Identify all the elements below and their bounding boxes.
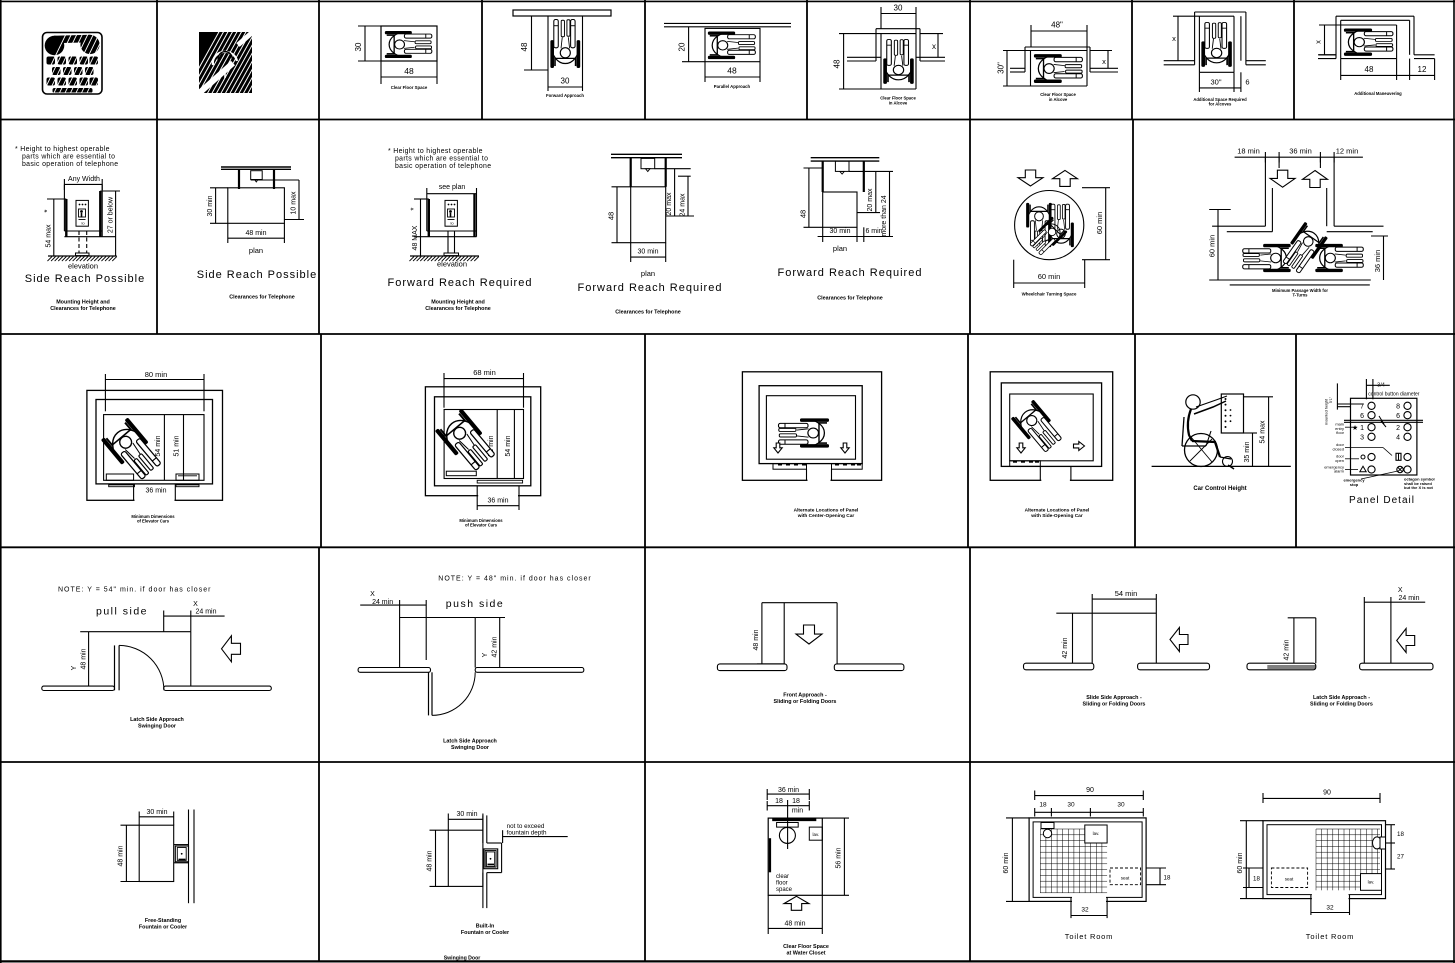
svg-text:in Alcove: in Alcove [1049, 97, 1068, 102]
svg-text:pull side: pull side [96, 606, 148, 618]
svg-text:push side: push side [446, 598, 504, 610]
svg-text:54 min: 54 min [1115, 589, 1138, 598]
svg-text:floor: floor [1336, 430, 1344, 435]
svg-text:T-Turns: T-Turns [1292, 293, 1308, 298]
svg-text:18: 18 [775, 798, 783, 805]
svg-text:X: X [193, 601, 198, 608]
svg-text:Alternate Locations of Panel: Alternate Locations of Panel [794, 508, 859, 514]
svg-text:space: space [776, 887, 793, 893]
svg-text:30: 30 [894, 4, 903, 13]
svg-text:30: 30 [561, 77, 570, 86]
svg-text:Sliding or Folding Doors: Sliding or Folding Doors [774, 699, 837, 705]
svg-text:36 min: 36 min [145, 488, 166, 495]
svg-text:Clear Floor Space: Clear Floor Space [391, 85, 428, 90]
svg-text:control button diameter: control button diameter [1368, 392, 1419, 398]
svg-text:Swinging Door: Swinging Door [451, 745, 490, 751]
svg-text:Sliding or Folding Doors: Sliding or Folding Doors [1083, 702, 1146, 708]
svg-text:plan: plan [833, 244, 847, 253]
svg-text:Parallel Approach: Parallel Approach [714, 84, 751, 89]
svg-text:Forward Reach Required: Forward Reach Required [578, 282, 723, 294]
svg-text:54 min: 54 min [505, 435, 512, 456]
svg-text:27 or below: 27 or below [108, 196, 115, 233]
svg-text:80 min: 80 min [145, 370, 168, 379]
svg-text:24 min: 24 min [1398, 595, 1419, 602]
svg-text:Y: Y [71, 665, 78, 670]
svg-text:32: 32 [1081, 907, 1089, 914]
svg-text:Fountain or Cooler: Fountain or Cooler [139, 925, 188, 931]
svg-text:basic operation of telephone: basic operation of telephone [22, 161, 118, 168]
svg-text:48 min: 48 min [427, 850, 434, 871]
svg-text:Clearances for Telephone: Clearances for Telephone [817, 296, 883, 302]
svg-text:68 min: 68 min [473, 368, 496, 377]
svg-text:6: 6 [1396, 413, 1400, 420]
svg-text:lav.: lav. [812, 832, 819, 837]
svg-text:Clearances for Telephone: Clearances for Telephone [229, 295, 295, 301]
svg-text:of Elevator Cars: of Elevator Cars [137, 519, 170, 524]
svg-text:60 min: 60 min [1237, 852, 1244, 873]
svg-text:7: 7 [1360, 403, 1364, 410]
svg-text:36 min: 36 min [1373, 250, 1382, 273]
svg-text:30 min: 30 min [456, 811, 477, 818]
svg-text:56 min: 56 min [836, 847, 843, 868]
svg-text:Additional Maneuvering: Additional Maneuvering [1354, 91, 1402, 96]
svg-text:min: min [792, 808, 803, 815]
svg-text:48: 48 [727, 66, 737, 76]
svg-text:5'1": 5'1" [1329, 396, 1333, 403]
svg-text:seat: seat [1285, 877, 1294, 882]
svg-text:basic operation of telephone: basic operation of telephone [395, 163, 491, 170]
svg-text:4: 4 [1396, 434, 1400, 441]
svg-text:open: open [1335, 458, 1344, 463]
svg-text:but the X is not: but the X is not [1404, 485, 1434, 490]
svg-text:Toilet Room: Toilet Room [1306, 932, 1354, 941]
svg-text:Y: Y [482, 652, 489, 657]
svg-text:30 min: 30 min [637, 249, 658, 256]
svg-text:8: 8 [1396, 403, 1400, 410]
svg-text:Alternate Locations of Panel: Alternate Locations of Panel [1025, 508, 1090, 514]
svg-text:48 min: 48 min [118, 845, 125, 866]
svg-text:90: 90 [1323, 790, 1331, 797]
svg-text:48 MAX: 48 MAX [412, 225, 419, 250]
svg-text:Latch Side Approach: Latch Side Approach [130, 717, 184, 723]
svg-text:48: 48 [520, 42, 529, 51]
svg-text:48 min: 48 min [245, 230, 266, 237]
svg-text:48: 48 [833, 59, 842, 68]
svg-text:with Center-Opening Car: with Center-Opening Car [797, 513, 855, 519]
svg-text:48: 48 [1365, 65, 1374, 74]
svg-text:3: 3 [1360, 434, 1364, 441]
svg-text:Mounting Height and: Mounting Height and [431, 300, 485, 306]
svg-text:Built-In: Built-In [476, 924, 495, 930]
svg-text:Wheelchair Turning Space: Wheelchair Turning Space [1022, 292, 1077, 297]
svg-text:51 min: 51 min [174, 435, 181, 456]
svg-text:60 min: 60 min [1208, 235, 1217, 258]
svg-text:★ 1: ★ 1 [1352, 424, 1364, 432]
svg-text:in Alcove: in Alcove [889, 101, 908, 106]
svg-text:36 min: 36 min [487, 498, 508, 505]
svg-text:6: 6 [1245, 78, 1249, 87]
svg-text:closed: closed [1332, 446, 1344, 451]
svg-text:18: 18 [792, 798, 800, 805]
svg-text:10 max: 10 max [291, 191, 298, 214]
svg-text:54 max: 54 max [46, 224, 53, 247]
svg-text:NOTE: Y = 54" min. if door has: NOTE: Y = 54" min. if door has closer [58, 587, 211, 594]
svg-text:Latch Side Approach -: Latch Side Approach - [1313, 695, 1370, 701]
svg-text:Forward Reach Required: Forward Reach Required [778, 267, 923, 279]
svg-text:Side Reach Possible: Side Reach Possible [25, 273, 146, 285]
svg-text:18 min: 18 min [1237, 147, 1260, 156]
svg-text:Swinging Door: Swinging Door [444, 956, 481, 962]
svg-text:*: * [410, 207, 419, 210]
svg-text:Car Control Height: Car Control Height [1193, 486, 1246, 492]
svg-text:6: 6 [1360, 413, 1364, 420]
svg-text:Toilet Room: Toilet Room [1065, 932, 1113, 941]
svg-text:mounted height: mounted height [1325, 398, 1329, 425]
svg-text:54 max: 54 max [1260, 420, 1267, 443]
svg-text:18: 18 [1164, 875, 1171, 882]
svg-text:48 min: 48 min [81, 648, 88, 669]
svg-text:30 min: 30 min [829, 228, 850, 235]
svg-text:x: x [1102, 57, 1106, 66]
svg-text:fountain depth: fountain depth [507, 830, 547, 837]
svg-text:18: 18 [1039, 802, 1047, 809]
svg-text:Any Width: Any Width [68, 176, 100, 183]
svg-text:Clearances for Telephone: Clearances for Telephone [50, 306, 116, 312]
svg-text:* Height to highest operable: * Height to highest operable [15, 146, 110, 153]
svg-text:48 min: 48 min [784, 921, 805, 928]
svg-text:plan: plan [641, 269, 655, 278]
svg-text:30: 30 [354, 42, 363, 51]
svg-text:stop: stop [1350, 482, 1359, 487]
svg-text:Free-Standing: Free-Standing [145, 918, 181, 924]
svg-text:18: 18 [1397, 831, 1404, 838]
svg-text:36 min: 36 min [1289, 147, 1312, 156]
svg-text:60 min: 60 min [1095, 212, 1104, 235]
svg-text:90: 90 [1086, 787, 1094, 794]
svg-text:Clear Floor Space: Clear Floor Space [783, 944, 829, 950]
svg-text:30: 30 [1117, 802, 1125, 809]
svg-text:42 min: 42 min [492, 636, 499, 657]
svg-text:30": 30" [1210, 78, 1221, 87]
svg-text:2: 2 [1396, 425, 1400, 432]
svg-text:30 min: 30 min [207, 195, 214, 216]
svg-text:48 min: 48 min [753, 629, 760, 650]
svg-text:parts which are essential to: parts which are essential to [22, 154, 115, 161]
svg-text:18: 18 [1253, 876, 1260, 883]
svg-text:24 max: 24 max [680, 193, 687, 216]
svg-text:30": 30" [997, 62, 1006, 74]
svg-text:x: x [1172, 34, 1176, 43]
svg-text:*: * [43, 209, 52, 212]
svg-text:60 min: 60 min [1003, 852, 1010, 873]
svg-text:clear: clear [776, 874, 789, 880]
svg-text:30 min: 30 min [146, 809, 167, 816]
svg-text:42 min: 42 min [1284, 639, 1291, 660]
svg-text:seat: seat [1121, 876, 1130, 881]
svg-text:20: 20 [678, 42, 687, 51]
svg-text:Sliding or Folding Doors: Sliding or Folding Doors [1310, 702, 1373, 708]
svg-text:at Water Closet: at Water Closet [786, 951, 825, 957]
svg-text:Panel Detail: Panel Detail [1349, 495, 1415, 506]
svg-text:NOTE: Y = 48" min. if door has: NOTE: Y = 48" min. if door has closer [438, 576, 591, 583]
svg-text:48: 48 [404, 66, 414, 76]
svg-text:48: 48 [799, 210, 808, 218]
svg-text:20 max: 20 max [666, 192, 673, 215]
svg-text:for Alcoves: for Alcoves [1209, 102, 1232, 107]
svg-text:X: X [370, 591, 375, 598]
svg-text:Clearances for Telephone: Clearances for Telephone [425, 306, 491, 312]
svg-text:x: x [1314, 40, 1323, 44]
svg-text:with Side-Opening Car: with Side-Opening Car [1030, 513, 1083, 519]
svg-text:X: X [1398, 587, 1403, 594]
svg-text:27: 27 [1397, 854, 1404, 861]
svg-text:Swinging Door: Swinging Door [138, 724, 177, 730]
svg-text:* Height to highest operable: * Height to highest operable [388, 148, 483, 155]
svg-text:Front Approach -: Front Approach - [783, 693, 827, 699]
svg-text:elevation: elevation [437, 260, 467, 269]
svg-text:12 min: 12 min [1336, 147, 1359, 156]
svg-text:Clearances for Telephone: Clearances for Telephone [615, 310, 681, 316]
svg-text:36 min: 36 min [778, 787, 799, 794]
svg-text:12: 12 [1418, 65, 1427, 74]
svg-text:Latch Side Approach: Latch Side Approach [443, 739, 497, 745]
svg-text:Forward Reach Required: Forward Reach Required [388, 277, 533, 289]
svg-text:lav.: lav. [1368, 880, 1375, 885]
svg-text:6 min: 6 min [865, 228, 882, 235]
svg-text:30: 30 [1067, 802, 1075, 809]
svg-text:alarm: alarm [1334, 469, 1345, 474]
svg-text:plan: plan [249, 246, 263, 255]
svg-text:54 min: 54 min [155, 435, 162, 456]
svg-text:floor: floor [776, 881, 788, 887]
svg-text:48": 48" [1051, 21, 1063, 30]
svg-text:32: 32 [1326, 905, 1334, 912]
svg-text:Forward Approach: Forward Approach [546, 93, 584, 98]
svg-text:parts which are essential to: parts which are essential to [395, 156, 488, 163]
svg-text:48: 48 [607, 212, 616, 220]
svg-text:see plan: see plan [439, 184, 466, 191]
svg-text:42 min: 42 min [1062, 637, 1069, 658]
svg-text:Mounting Height and: Mounting Height and [56, 300, 110, 306]
svg-text:24 min: 24 min [195, 609, 216, 616]
svg-text:elevation: elevation [68, 262, 98, 271]
svg-text:lav.: lav. [1093, 831, 1100, 836]
svg-text:35 min: 35 min [1244, 441, 1251, 462]
svg-text:Fountain or Cooler: Fountain or Cooler [461, 930, 510, 936]
svg-text:x: x [932, 42, 936, 51]
svg-text:Side Reach Possible: Side Reach Possible [197, 269, 318, 281]
svg-text:20 max: 20 max [867, 188, 874, 211]
svg-text:Slide Side Approach -: Slide Side Approach - [1086, 695, 1142, 701]
svg-text:60 min: 60 min [1038, 272, 1061, 281]
svg-text:of Elevator Cars: of Elevator Cars [465, 523, 498, 528]
